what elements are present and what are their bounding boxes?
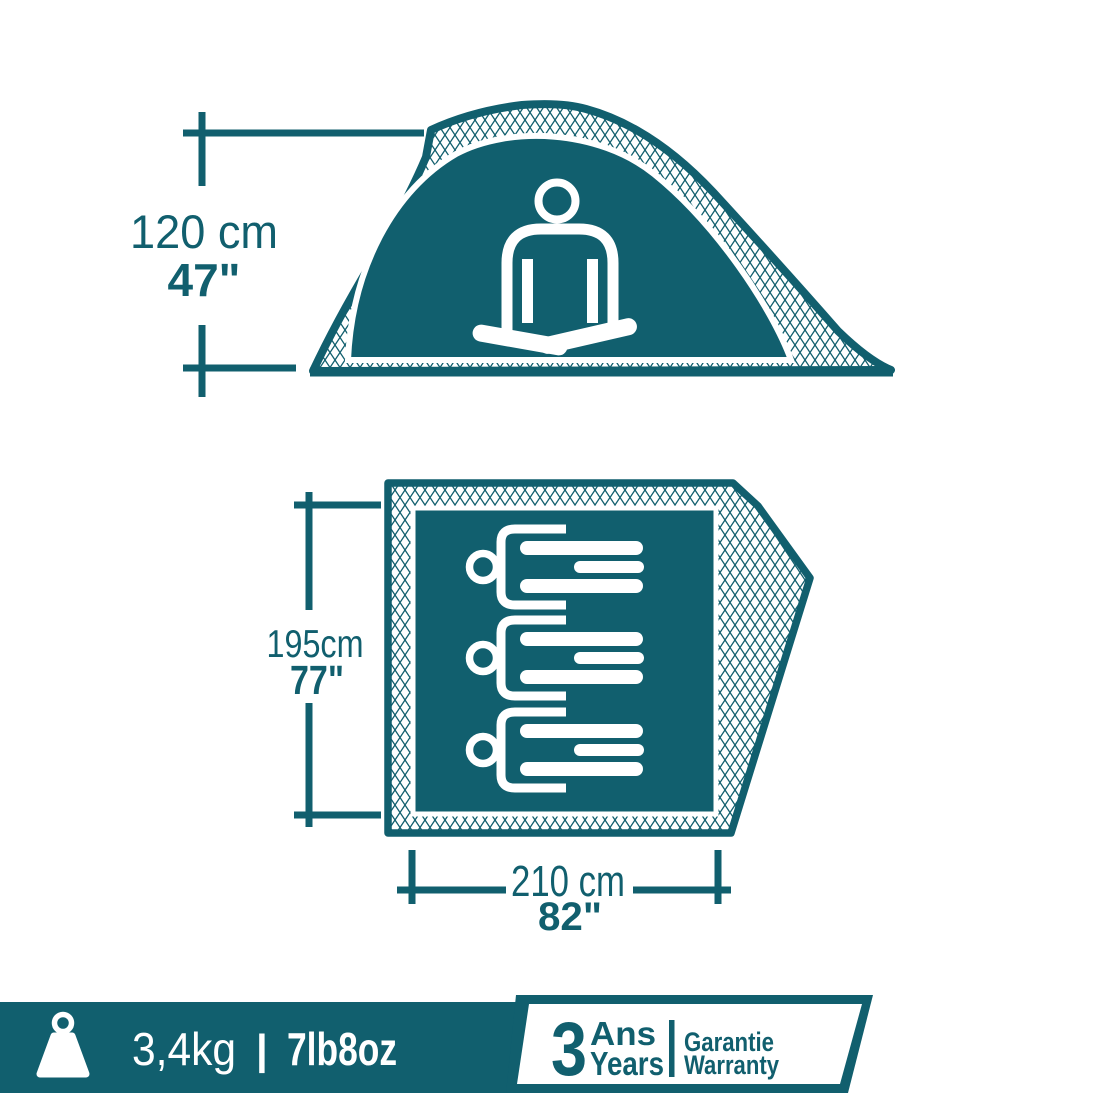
width-dimension: 210 cm 82" xyxy=(397,850,731,939)
warranty-divider xyxy=(669,1020,675,1077)
width-in-label: 82" xyxy=(538,895,602,939)
tent-spec-infographic: 120 cm 47" xyxy=(0,0,1100,1100)
tent-floor-plan: 195cm 77" xyxy=(0,460,1100,995)
weight-metric-label: 3,4kg xyxy=(132,1023,236,1075)
spec-banner: 3,4kg | 7lb8oz 3 Ans Years Garantie Warr… xyxy=(0,995,1100,1100)
warranty-unit-en: Years xyxy=(590,1045,664,1082)
height-in-label: 47" xyxy=(168,254,241,306)
depth-in-label: 77" xyxy=(290,657,344,703)
warranty-label-en: Warranty xyxy=(684,1050,779,1080)
depth-dimension: 195cm 77" xyxy=(267,492,382,827)
tent-inner-dome xyxy=(348,136,791,360)
height-cm-label: 120 cm xyxy=(130,205,278,258)
tent-side-view: 120 cm 47" xyxy=(0,0,1100,460)
weight-separator: | xyxy=(256,1026,268,1074)
warranty-badge: 3 Ans Years Garantie Warranty xyxy=(506,995,873,1093)
weight-imperial-label: 7lb8oz xyxy=(287,1023,397,1075)
warranty-years-number: 3 xyxy=(551,1007,587,1092)
